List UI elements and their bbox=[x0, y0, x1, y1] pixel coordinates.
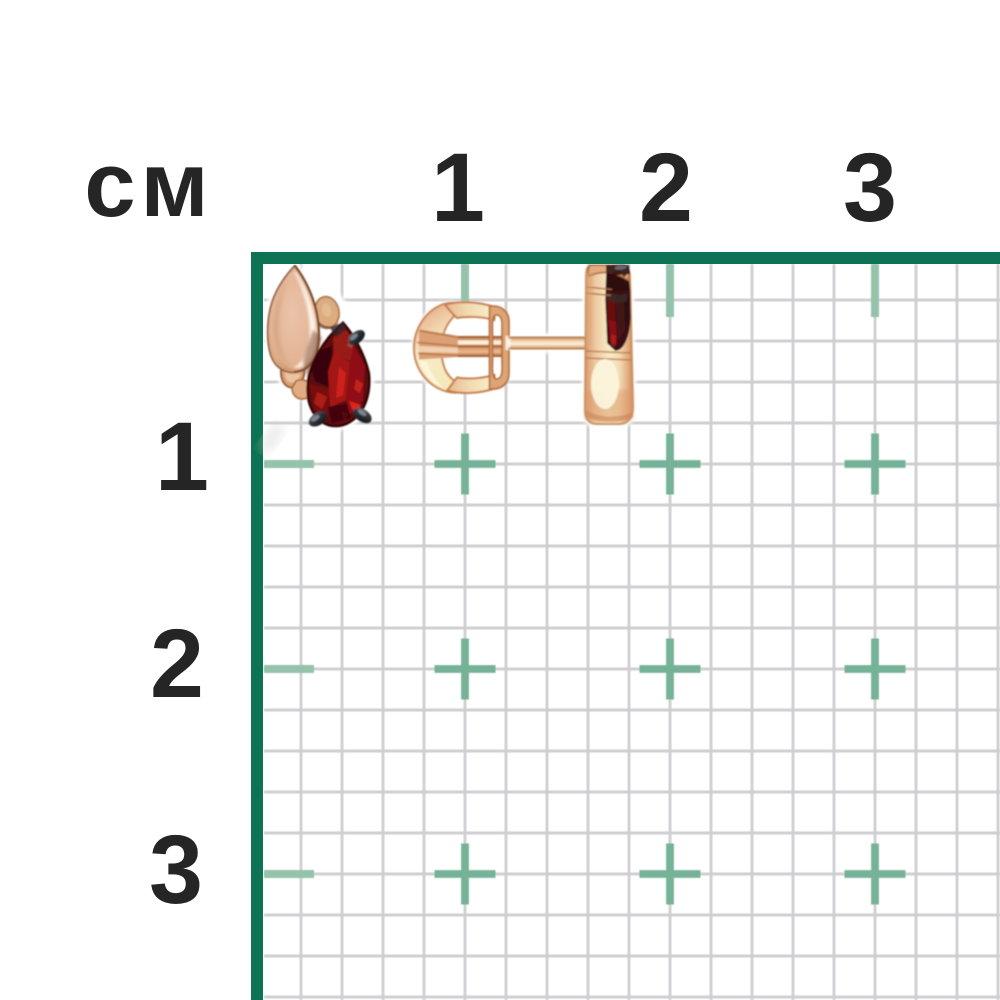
svg-text:2: 2 bbox=[639, 133, 693, 242]
svg-text:3: 3 bbox=[149, 815, 203, 924]
svg-text:1: 1 bbox=[155, 402, 209, 511]
svg-text:1: 1 bbox=[431, 133, 485, 242]
svg-text:3: 3 bbox=[843, 133, 897, 242]
svg-text:2: 2 bbox=[150, 609, 204, 718]
svg-text:см: см bbox=[84, 134, 213, 236]
